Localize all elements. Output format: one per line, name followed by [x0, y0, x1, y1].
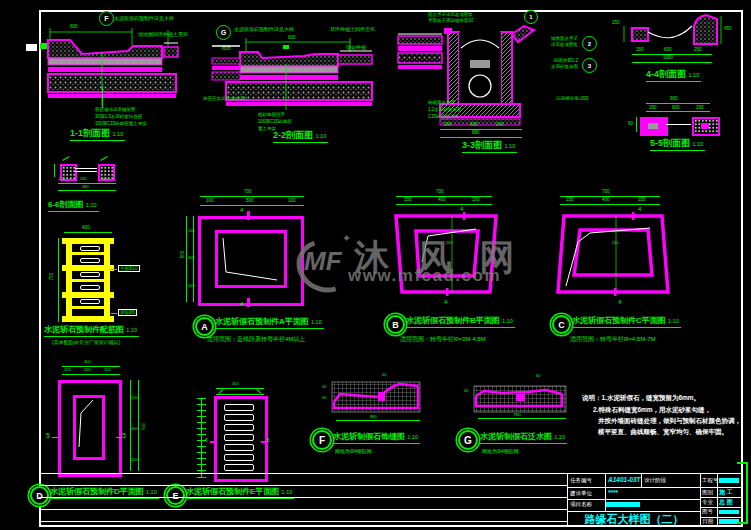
s44-dim-seg-3: 250: [694, 47, 702, 52]
planC-note: 适用范围：转弯半径R=4.5M-7M: [570, 336, 656, 343]
s11-leader-line: [102, 86, 103, 108]
s33-dim-seg-2: 400: [470, 122, 478, 127]
s11-note-top: 水泥斩假石预制件详见大样: [114, 15, 174, 21]
planE-ruler-tick: [197, 398, 206, 399]
s66-dim-seg-1: 120: [58, 176, 65, 181]
s55-dim-line-2: [646, 111, 710, 112]
s33-dim-seg-1: 240: [444, 122, 452, 127]
planC-dim-total: 700: [602, 189, 610, 194]
detailG-drawing: [472, 382, 570, 416]
notes-line-3: 并按外墙面砖缝处理，做到与预制石材颜色协调，: [598, 417, 741, 426]
frame-top: [39, 10, 743, 12]
planA-dim-left-seg-2: 300: [188, 255, 195, 260]
planE-grate-slot: [224, 404, 254, 411]
mfcad-logo-text: MF: [304, 246, 342, 277]
planA-letter-badge: A: [195, 317, 214, 336]
s11-label: 1-1剖面图 1:10: [70, 129, 125, 141]
titleblock-line: [567, 487, 700, 488]
s33-note-top-2: 箅面低于周边铺装面20: [428, 18, 474, 23]
cad-drawing-canvas: F 水泥斩假石预制件详见大样 绿地侧回填种植土夯实 600 面层做法详见铺装图 …: [0, 0, 751, 530]
titleblock-line: [567, 499, 700, 500]
planE-ruler-tick: [197, 477, 206, 478]
rebar-dim-top-line: [64, 232, 112, 233]
s33-callout-bubble-1: 1: [524, 10, 538, 24]
planE-dim-total: 400: [232, 381, 239, 386]
s55-label: 5-5剖面图 1:10: [650, 139, 705, 151]
detailG-label: 水泥斩制假石泛水图 1:10: [480, 433, 567, 444]
planA-dim-line-1: [200, 196, 304, 197]
s33-label: 3-3剖面图 1:10: [462, 141, 517, 153]
notes-line-4: 横平竖直、曲线顺畅、宽窄均匀、确保牢固。: [598, 428, 728, 437]
planE-marker-left: 6: [205, 437, 208, 443]
planC-label: 水泥斩假石预制件C平面图 1:10: [572, 317, 681, 328]
planE-grate-slot: [224, 434, 254, 441]
client-value: ****: [608, 489, 618, 496]
discipline-label: 专业: [702, 499, 713, 506]
rebar-slot: [80, 285, 100, 290]
detailG-dim-bottom-line: [478, 418, 566, 419]
s22-note-right: 草坪种植土回填压实: [330, 26, 375, 32]
s66-line-1: [75, 168, 97, 169]
s44-label: 4-4剖面图 1:10: [646, 70, 701, 82]
notes-line-1: 说明：1.水泥斩假石，缝宽预留为6mm。: [582, 394, 700, 403]
drawing-no-value-bar: [719, 510, 739, 514]
planE-grate-slot: [224, 444, 254, 451]
planE-ruler-tick: [197, 428, 206, 429]
right-bracket-line: [746, 462, 748, 524]
detailG-dim-top: 60: [536, 373, 540, 378]
planB-letter-badge: B: [386, 315, 405, 334]
rebar-label: 水泥斩石预制件配筋图 1:10: [44, 326, 139, 337]
s22-label: 2-2剖面图 1:10: [273, 131, 328, 143]
planE-cut-mark-right: [261, 441, 266, 443]
s66-line-2: [75, 171, 97, 172]
detailF-note: 网格为Φ4钢筋网: [335, 448, 372, 454]
s44-dim-line-2: [632, 62, 712, 63]
rebar-rung-5: [62, 292, 114, 298]
s22-leader-2: 100厚C15砼垫层: [258, 119, 292, 124]
planA-note: 适用范围：直线段及转弯半径4M以上: [207, 336, 305, 343]
detailF-dim-bottom-line: [336, 420, 420, 421]
s33-bubble2-text-2: 详见标准图集: [518, 42, 578, 47]
detailG-letter-badge: G: [458, 430, 478, 450]
rebar-rung-7: [62, 316, 114, 322]
rebar-slot: [80, 258, 100, 263]
s11-profile-drawing: [44, 26, 180, 108]
s33-note-right: 沉泥槽深度≥300: [556, 96, 588, 101]
rebar-rung-4: [66, 279, 110, 282]
project-name-label: 项目名称: [570, 501, 592, 508]
rebar-dim-left-line: [58, 238, 59, 322]
detailG-dim-left: 40: [464, 388, 468, 393]
planB-dim-line-2: [396, 204, 492, 205]
s66-dim-seg-3: 120: [102, 176, 109, 181]
s66-dim-total: 480: [82, 184, 89, 189]
date-value-bar: [719, 519, 739, 524]
s33-bubble3-text-2: 水泥砂浆抹面: [518, 64, 578, 69]
rebar-rung-2: [66, 252, 110, 255]
s55-dim-seg-2: 600: [672, 105, 680, 110]
s55-block-left-core: [648, 123, 658, 129]
planA-dim-left-line-1: [186, 216, 187, 302]
bubble-letter: F: [104, 15, 108, 22]
s33-dim-total: 880: [472, 130, 480, 135]
planE-ruler-tick: [197, 458, 206, 459]
planD-letter-badge: D: [30, 486, 49, 505]
detailF-label: 水泥斩制假石饰缝图 1:10: [333, 433, 420, 444]
planE-ruler-tick: [197, 446, 206, 447]
mfcad-logo: MF ✦: [294, 236, 354, 288]
s22-note-top: 水泥斩假石预制件详见大样: [234, 26, 294, 32]
s33-bubble2-text-1: 铸铁雨水箅子: [518, 36, 578, 41]
planA-joint-line: [215, 230, 287, 288]
planC-marker-bottom: 4: [618, 299, 621, 305]
s33-dim-line-2: [440, 137, 522, 138]
planD-cut-line-left: [52, 437, 58, 438]
planA-dim-line-2: [200, 205, 304, 206]
planE-ruler-tick: [197, 416, 206, 417]
planE-cut-mark-left: [210, 441, 215, 443]
project-name-value-bar: [606, 502, 640, 507]
detailF-drawing: [330, 380, 422, 416]
project-no-label: 工程号: [702, 477, 719, 484]
planD-dim-seg-1: 100: [64, 367, 71, 372]
drawing-type-label: 图别: [702, 489, 713, 496]
planA-dim-left-seg-1: 100: [188, 228, 195, 233]
planD-dim-right-seg-2: 300: [131, 426, 138, 431]
right-bracket-bottom: [737, 522, 748, 524]
rebar-tag-main: 主筋Φ10: [118, 265, 140, 272]
planD-dim-right-line-2: [138, 380, 139, 471]
s22-leader-1: 粗砂垫层找平: [258, 112, 285, 117]
watermark-url: www.mfcad.com: [348, 266, 501, 286]
drawing-title: 路缘石大样图（二）: [571, 512, 697, 527]
planD-joint-line: [73, 395, 105, 460]
s55-dim-left-line: [636, 117, 637, 132]
rebar-dim-top: 400: [82, 225, 90, 230]
project-no-value-bar: [719, 478, 739, 483]
s33-dim-line-1: [440, 129, 522, 130]
rebar-rung-3: [62, 265, 114, 271]
s33-note-top-1: 雨水箅子详见标准图集: [428, 12, 473, 17]
planD-dim-right-total: 600: [141, 423, 146, 430]
rebar-slot: [80, 246, 100, 251]
s44-dim-left: 150: [612, 20, 620, 25]
s33-leader-1: 砖砌雨水井壁: [428, 100, 455, 105]
rebar-rung-1: [62, 238, 114, 244]
planA-label: 水泥斩假石预制件A平面图 1:10: [215, 318, 324, 329]
detailF-dim-bottom: 880: [370, 414, 377, 419]
s66-label: 6-6剖面图 1:10: [48, 201, 99, 212]
rebar-tag-stirrup: 箍筋Φ6: [118, 309, 137, 316]
planA-cut-mark-top: [247, 211, 250, 220]
detailF-letter-badge: F: [312, 430, 332, 450]
s55-block-right: [692, 117, 720, 136]
s33-dim-seg-3: 240: [496, 122, 504, 127]
planB-dim-seg-3: 150: [472, 197, 480, 202]
detailG-dim-bottom: 980: [514, 412, 521, 417]
s22-dim-top: 600: [288, 35, 296, 40]
detailF-dim-left-1: 40: [322, 384, 326, 389]
s66-tick-2: [100, 156, 107, 161]
planD-marker-right: 5: [122, 432, 126, 439]
detailG-note: 网格为Φ4钢筋网: [482, 448, 519, 454]
bubble-letter: G: [221, 29, 226, 36]
planA-dim-seg-1: 100: [206, 198, 214, 203]
s55-connector-line: [666, 124, 691, 125]
s66-dim-line-2: [58, 190, 116, 191]
planB-marker-top: 4: [460, 206, 463, 212]
planE-ruler-tick: [197, 434, 206, 435]
s11-leader-3: 150厚C15砼垫层素土夯实: [95, 121, 147, 126]
drawing-type-value: 施 工: [719, 488, 733, 497]
s33-leader-3: C15砼底板浇筑: [428, 114, 459, 119]
s66-tick-1: [62, 156, 69, 161]
rebar-tag-leader-1: [111, 269, 117, 270]
s55-block-left: [640, 117, 668, 136]
s11-leader-1: 面层做法详见铺装图: [95, 107, 136, 112]
planA-marker-top: 4: [240, 207, 243, 213]
discipline-value: 总 图: [719, 498, 733, 507]
planC-letter-badge: C: [552, 315, 571, 334]
planE-ruler-tick: [197, 422, 206, 423]
s11-leader-2: 30厚1:3水泥砂浆结合层: [95, 114, 142, 119]
drawing-no-label: 图号: [702, 508, 713, 515]
planA-dim-total: 700: [244, 189, 252, 194]
rebar-tag-leader-2: [111, 313, 117, 314]
client-label: 建设单位: [570, 490, 592, 497]
s44-dim-seg-2: 600: [664, 47, 672, 52]
s55-dim-left: 60: [628, 121, 633, 126]
design-stage-label: 设计阶段: [644, 477, 666, 484]
planD-dim-seg-3: 100: [104, 367, 111, 372]
planE-ruler-tick: [197, 452, 206, 453]
right-bracket-top: [737, 462, 748, 464]
planA-marker-bottom: 4: [240, 301, 243, 307]
titleblock-line: [39, 485, 567, 486]
planD-dim-line-2: [62, 374, 120, 375]
planE-grate-slot: [224, 414, 254, 421]
planE-letter-badge: E: [166, 486, 185, 505]
rebar-slot: [80, 272, 100, 277]
detailF-dim-left-2: 90: [322, 395, 326, 400]
planA-dim-seg-3: 100: [288, 198, 296, 203]
s55-dim-seg-3: 150: [696, 105, 704, 110]
frame-right: [741, 10, 743, 527]
planD-dim-right-seg-1: 150: [131, 395, 138, 400]
s44-dim-total: 1000: [663, 55, 673, 60]
s66-dim-seg-2: 240: [80, 176, 87, 181]
planC-drawing: [556, 212, 672, 300]
planC-dim-mid: 240: [612, 240, 619, 245]
planD-dim-seg-2: 200: [84, 367, 91, 372]
planC-marker-top: 4: [638, 206, 641, 212]
s33-bubble3-text-1: 四周井壁1:2: [518, 58, 578, 63]
task-number-label: 任务编号: [570, 477, 592, 484]
planD-cut-line-right: [116, 437, 122, 438]
notes-line-2: 2.特殊石料缝宽6mm，用水泥砂浆勾缝，: [593, 406, 711, 415]
date-label: 日期: [702, 518, 713, 525]
planA-dim-seg-2: 500: [246, 198, 254, 203]
planB-dim-seg-1: 150: [404, 197, 412, 202]
planE-marker-right: 6: [267, 437, 270, 443]
s55-block-right-core: [701, 123, 709, 129]
planD-marker-left: 5: [46, 432, 50, 439]
planE-grate-slot: [224, 464, 254, 471]
rebar-note: (具体配筋由专业厂家设计确认): [52, 339, 120, 345]
mfcad-logo-star: ✦: [342, 232, 351, 245]
detailF-dim-top: 60: [382, 372, 386, 377]
planB-marker-bottom: 4: [444, 299, 447, 305]
titleblock-line: [39, 497, 567, 498]
titleblock-divider: [641, 473, 642, 487]
planA-dim-left-total: 500: [180, 251, 185, 259]
titleblock-line: [39, 521, 567, 522]
s11-dim-top: 600: [70, 24, 78, 29]
planE-ruler-tick: [197, 410, 206, 411]
rebar-dim-left: 750: [49, 273, 54, 281]
rebar-slot: [80, 299, 100, 304]
planB-dim-total: 700: [436, 189, 444, 194]
planB-label: 水泥斩假石预制件B平面图 1:10: [406, 317, 515, 328]
planE-ruler-tick: [197, 470, 206, 471]
planE-ruler-tick: [197, 404, 206, 405]
planE-grate-slot: [224, 454, 254, 461]
s44-dim-seg-1: 150: [636, 47, 644, 52]
planE-ruler-tick: [197, 464, 206, 465]
s33-callout-bubble-3: 3: [582, 58, 597, 73]
planC-dim-seg-1: 150: [566, 197, 574, 202]
frame-left: [39, 10, 41, 527]
planE-grate-slot: [224, 424, 254, 431]
titleblock-line: [39, 509, 567, 510]
s55-dim-line-1: [646, 103, 710, 104]
planB-note: 适用范围：转弯半径R=3M-4.5M: [400, 336, 486, 343]
task-number-value: A1401-03T: [608, 476, 641, 483]
s22-note-left: 路基压实详见道路设计: [203, 96, 248, 101]
s66-dim-left-line: [54, 164, 55, 177]
s44-dim-right: 450: [724, 26, 732, 31]
s55-dim-seg-1: 150: [649, 105, 657, 110]
planC-dim-seg-2: 400: [602, 197, 610, 202]
planC-dim-seg-3: 150: [638, 197, 646, 202]
s55-dim-total: 900: [670, 96, 678, 101]
s33-leader-2: 1:2水泥砂浆抹面: [428, 107, 461, 112]
planC-dim-line-2: [560, 204, 660, 205]
planA-dim-left-seg-3: 100: [188, 283, 195, 288]
detail-bubble-f: F: [99, 11, 114, 26]
margin-white-tag: [26, 44, 37, 51]
planD-dim-total: 400: [84, 359, 91, 364]
planA-cut-mark-bottom: [247, 298, 250, 307]
planE-dim-line-2: [216, 394, 264, 395]
planD-dim-right-seg-3: 150: [131, 457, 138, 462]
titleblock-line: [39, 473, 741, 474]
planB-dim-seg-2: 400: [438, 197, 446, 202]
s33-callout-bubble-2: 2: [582, 36, 597, 51]
rebar-rung-6: [66, 306, 110, 309]
